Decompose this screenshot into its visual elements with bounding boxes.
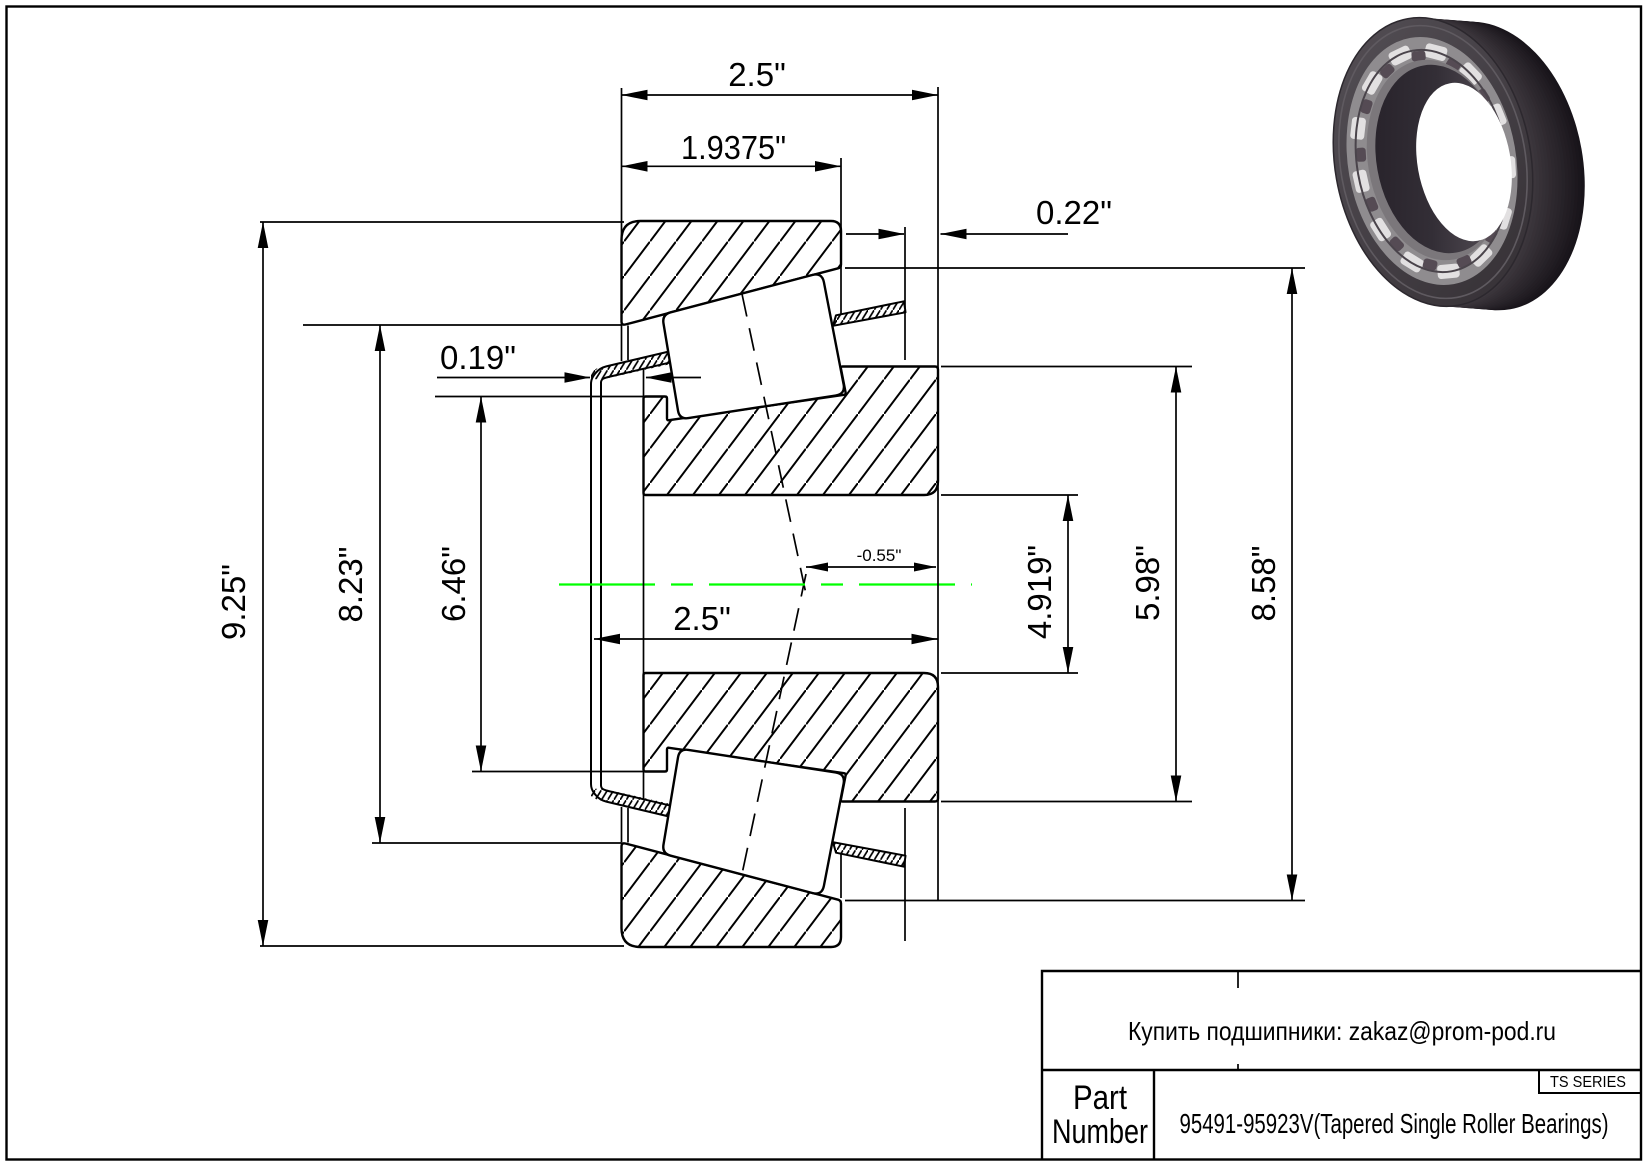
svg-text:Number: Number — [1052, 1113, 1148, 1151]
svg-text:-0.55": -0.55" — [857, 546, 902, 565]
svg-text:6.46": 6.46" — [435, 546, 472, 622]
svg-text:Купить подшипники: zakaz@prom-: Купить подшипники: zakaz@prom-pod.ru — [1128, 1016, 1556, 1046]
svg-text:8.23": 8.23" — [332, 547, 369, 623]
svg-text:5.98": 5.98" — [1129, 545, 1166, 621]
svg-text:9.25": 9.25" — [215, 564, 252, 640]
svg-text:0.19": 0.19" — [440, 339, 516, 376]
svg-text:4.919": 4.919" — [1021, 545, 1058, 639]
svg-text:1.9375": 1.9375" — [681, 129, 786, 166]
svg-text:TS SERIES: TS SERIES — [1550, 1074, 1626, 1091]
svg-text:Part: Part — [1073, 1079, 1127, 1117]
svg-text:95491-95923V(Tapered Single Ro: 95491-95923V(Tapered Single Roller Beari… — [1180, 1108, 1609, 1139]
svg-text:2.5": 2.5" — [728, 56, 786, 93]
svg-text:2.5": 2.5" — [673, 600, 731, 637]
svg-text:8.58": 8.58" — [1245, 546, 1282, 622]
svg-text:0.22": 0.22" — [1036, 194, 1112, 231]
